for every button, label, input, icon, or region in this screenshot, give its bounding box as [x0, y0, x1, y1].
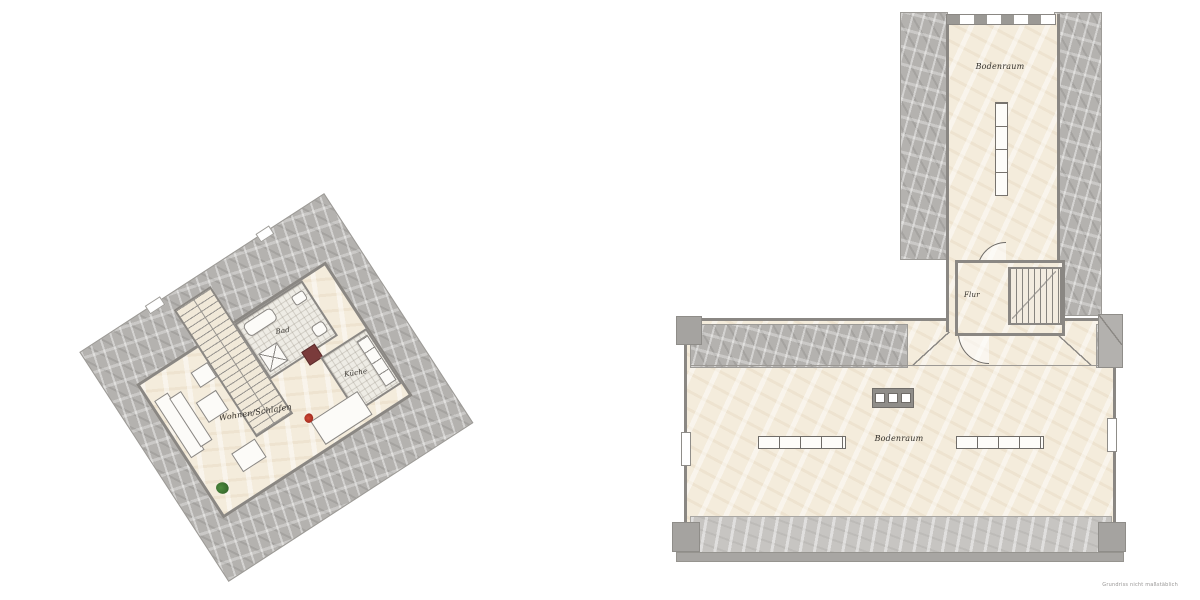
roof-slope-top-left: [690, 324, 908, 368]
collar-beam-right: [956, 436, 1044, 449]
gable-block-diagonal: [1099, 315, 1122, 345]
room-label-bodenraum-top: Bodenraum: [949, 62, 1051, 71]
chimney-flue: [901, 393, 911, 403]
chimney-flue: [888, 393, 898, 403]
chimney-flue: [875, 393, 885, 403]
window-right-wall: [1107, 418, 1117, 452]
staircase-flur: [1008, 267, 1062, 325]
collar-beam-left: [758, 436, 846, 449]
room-flur: Flur: [955, 260, 1065, 336]
right-floorplan: Bodenraum Bodenraum Flur: [0, 0, 1200, 600]
roof-slope-bottom: [690, 516, 1112, 554]
gable-window-row: [946, 14, 1056, 25]
gable-block-right: [1098, 314, 1123, 368]
room-label-flur: Flur: [964, 291, 980, 299]
floorplan-canvas: Bad Küche Wohnen/Schlafen: [0, 0, 1200, 600]
interior-wall-line: [690, 365, 1110, 366]
room-label-bodenraum-main: Bodenraum: [845, 434, 953, 443]
caption-disclaimer: Grundriss nicht maßstäblich: [1058, 582, 1178, 588]
corner-pillar-bottom-right: [1098, 522, 1126, 552]
chimney-block: [872, 388, 914, 408]
eaves-band-bottom: [676, 552, 1124, 562]
corner-pillar-bottom-left: [672, 522, 700, 552]
stair-direction-arrow: [1012, 271, 1056, 319]
window-left-wall: [681, 432, 691, 466]
roof-slope-wing-left: [900, 12, 948, 260]
shelf: [995, 102, 1008, 196]
corner-pillar-top-left: [676, 316, 702, 345]
